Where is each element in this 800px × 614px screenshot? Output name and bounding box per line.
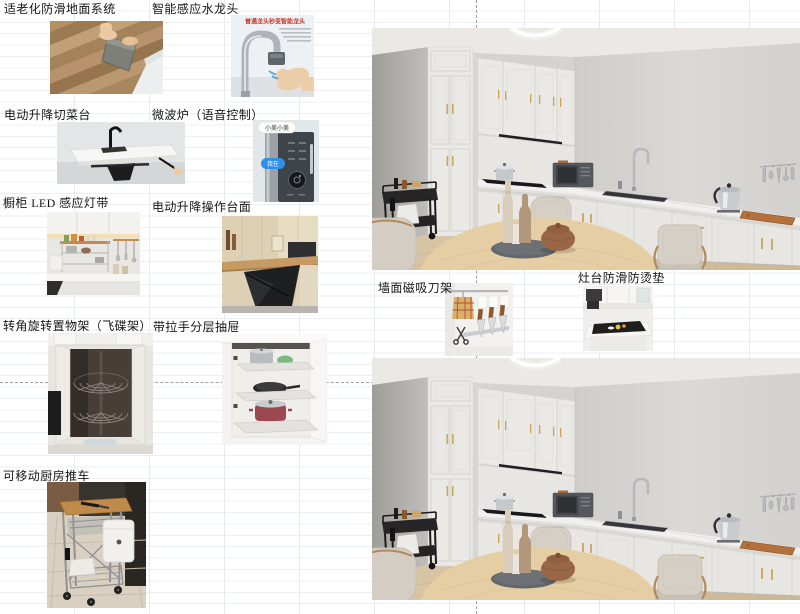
svg-text:小美小美: 小美小美 — [265, 124, 289, 132]
countertop — [47, 274, 140, 281]
menu-board — [272, 236, 283, 251]
feature-label-drawer: 带拉手分层抽屉 — [153, 320, 240, 334]
lifting-cutting-table-photo[interactable] — [57, 122, 185, 184]
feature-label-corner-rack: 转角旋转置物架（飞碟架） — [3, 319, 152, 333]
voice-microwave-photo[interactable]: 小美小美 我在 — [253, 120, 319, 202]
floor — [222, 306, 318, 313]
upper-cabinets — [47, 212, 140, 238]
wall-rail — [450, 290, 508, 292]
open-door-right — [132, 345, 145, 445]
island-with-mat — [584, 321, 653, 351]
feature-label-cut-table: 电动升降切菜台 — [4, 108, 91, 122]
stove-mat-photo[interactable] — [583, 286, 653, 351]
faucet-photo-caption: 普通龙头秒变智能龙头 — [245, 18, 305, 26]
feature-label-faucet: 智能感应水龙头 — [152, 2, 239, 16]
smart-faucet-photo[interactable]: 普通龙头秒变智能龙头 — [231, 15, 314, 97]
cabinet-led-strip-photo[interactable] — [47, 212, 140, 295]
feature-label-cart: 可移动厨房推车 — [3, 469, 90, 483]
svg-text:我在: 我在 — [267, 160, 279, 168]
feature-label-led: 橱柜 LED 感应灯带 — [3, 196, 109, 210]
kitchen-cart-photo[interactable] — [47, 482, 146, 608]
small-appliance — [50, 256, 62, 270]
lifting-countertop-photo[interactable] — [222, 216, 318, 313]
kitchen-render-bottom[interactable] — [372, 358, 800, 600]
reply-bubble: 我在 — [261, 158, 285, 169]
layered-drawer-photo[interactable] — [222, 334, 327, 444]
feature-label-knife-rack: 墙面磁吸刀架 — [378, 281, 452, 295]
background-kitchen — [583, 287, 653, 323]
wake-word-bubble: 小美小美 — [258, 122, 296, 133]
magnetic-knife-rack-photo[interactable] — [445, 283, 513, 356]
feature-label-microwave: 微波炉（语音控制） — [152, 108, 264, 122]
spreadsheet-grid[interactable]: 适老化防滑地面系统 智能感应水龙头 电动升降切菜台 微波炉（语音控制） 橱柜 L… — [0, 0, 800, 614]
anti-slip-floor-photo[interactable] — [50, 21, 163, 94]
white-bag — [69, 558, 95, 576]
corner-rotating-rack-photo[interactable] — [48, 333, 153, 454]
feature-label-stove-mat: 灶台防滑防烫垫 — [578, 271, 665, 285]
side-appliance — [48, 391, 61, 435]
feature-label-countertop: 电动升降操作台面 — [152, 200, 251, 214]
feature-label-floor: 适老化防滑地面系统 — [4, 2, 116, 16]
kitchen-render-top[interactable] — [372, 28, 800, 270]
